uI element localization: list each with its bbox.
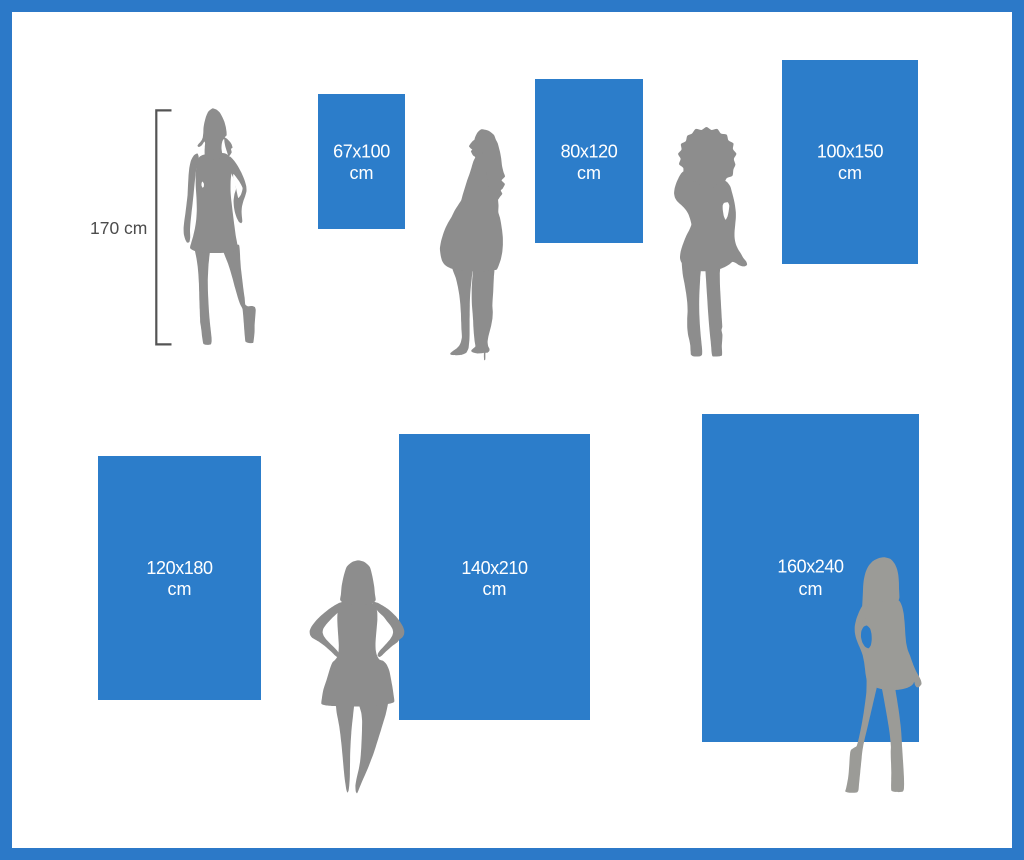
svg-text:170 cm: 170 cm <box>90 218 147 238</box>
svg-text:80x120: 80x120 <box>561 142 618 162</box>
svg-text:67x100: 67x100 <box>333 142 390 162</box>
svg-text:160x240: 160x240 <box>777 557 844 577</box>
svg-text:cm: cm <box>838 163 862 183</box>
svg-text:120x180: 120x180 <box>146 558 213 578</box>
svg-text:cm: cm <box>168 579 192 599</box>
svg-text:cm: cm <box>799 579 823 599</box>
svg-text:cm: cm <box>350 163 374 183</box>
svg-text:100x150: 100x150 <box>817 142 884 162</box>
svg-text:cm: cm <box>483 579 507 599</box>
svg-text:140x210: 140x210 <box>461 558 528 578</box>
svg-text:cm: cm <box>577 163 601 183</box>
